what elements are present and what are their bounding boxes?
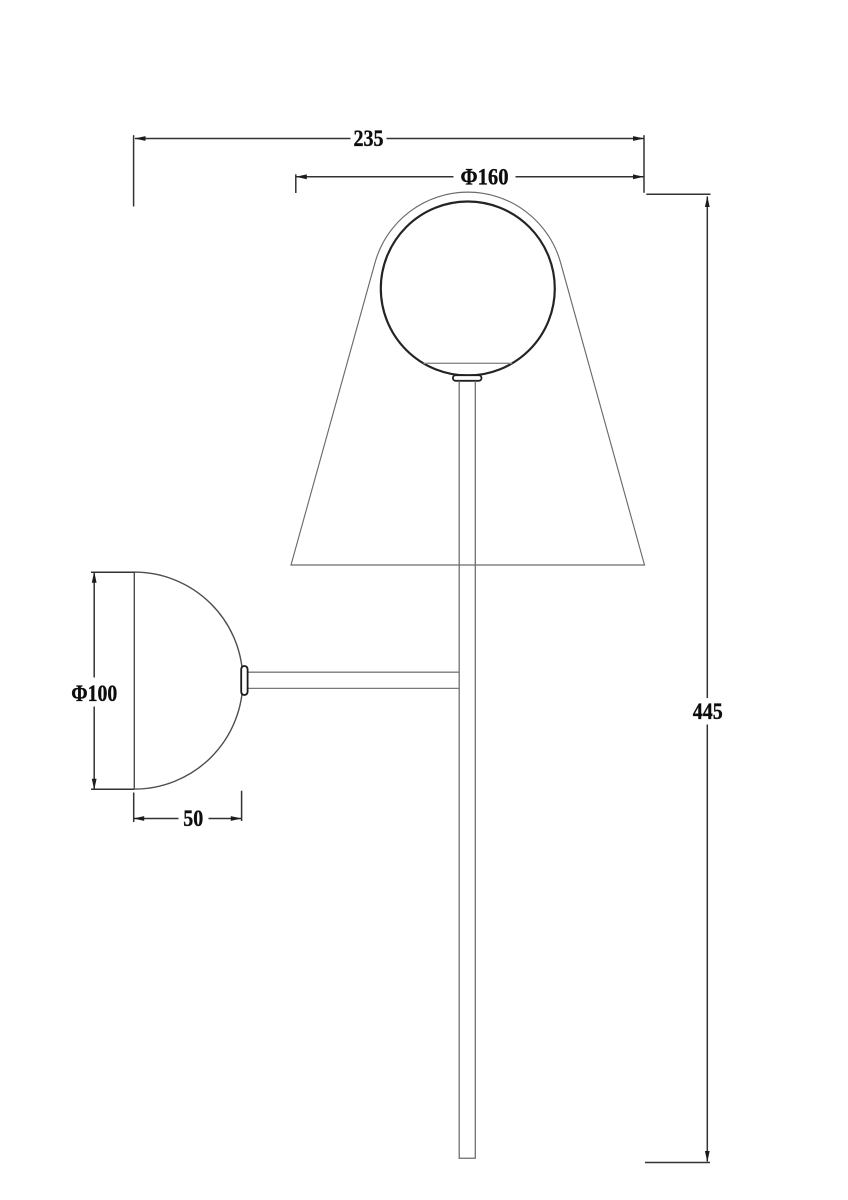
svg-text:50: 50 xyxy=(183,806,203,832)
svg-text:Φ160: Φ160 xyxy=(461,165,509,191)
svg-text:Φ100: Φ100 xyxy=(71,681,117,707)
svg-text:235: 235 xyxy=(354,126,384,152)
svg-text:445: 445 xyxy=(693,699,723,725)
